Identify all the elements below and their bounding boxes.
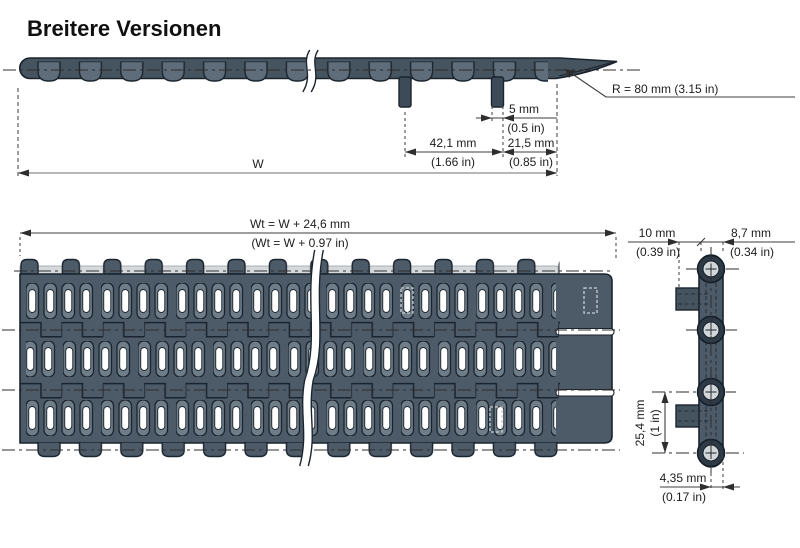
top-view: Wt = W + 24,6 mm (Wt = W + 0.97 in) (2, 217, 620, 466)
dim-radius-label: R = 80 mm (3.15 in) (612, 82, 718, 96)
edge-tab-lower (676, 405, 700, 427)
dim-total-width-in: (Wt = W + 0.97 in) (251, 236, 348, 250)
end-view: 10 mm (0.39 in) 8,7 mm (0.34 in) 25,4 mm… (628, 226, 795, 504)
dim-total-width-mm: Wt = W + 24,6 mm (250, 217, 350, 231)
edge-tab-upper (676, 288, 700, 310)
dim-pitch-in: (1 in) (648, 409, 662, 436)
dim-tab-length-in: (0.39 in) (636, 245, 680, 259)
dim-edge-offset-mm: 21,5 mm (508, 136, 555, 150)
dim-pin-offset-in: (0.17 in) (662, 490, 706, 504)
side-view: 5 mm (0.5 in) 42,1 mm (1.66 in) 21,5 mm … (3, 50, 795, 177)
hinge-joint-2 (20, 382, 560, 400)
slot-row-2 (26, 341, 556, 377)
dim-pin-offset-mm: 4,35 mm (660, 471, 707, 485)
dim-tab-width-in: (0.5 in) (507, 121, 544, 135)
dim-edge-width-mm: 8,7 mm (731, 226, 771, 240)
slot-row-1 (26, 283, 556, 319)
dim-pitch-mm: 25,4 mm (633, 400, 647, 447)
dim-tab-spacing-mm: 42,1 mm (430, 136, 477, 150)
dim-edge-offset-in: (0.85 in) (509, 155, 553, 169)
dim-edge-width-in: (0.34 in) (730, 245, 774, 259)
belt-tab-right (492, 77, 504, 107)
dim-tab-width-mm: 5 mm (509, 102, 539, 116)
row-gap-right-1 (556, 329, 614, 336)
top-hinge-tabs (20, 259, 560, 275)
technical-drawing: 5 mm (0.5 in) 42,1 mm (1.66 in) 21,5 mm … (0, 0, 800, 548)
slot-row-3 (26, 400, 556, 436)
belt-knuckles (34, 62, 548, 84)
dim-width-label: W (252, 157, 264, 171)
drawing-page: Breitere Versionen (0, 0, 800, 548)
belt-tab-left (399, 77, 411, 107)
dim-tab-spacing-in: (1.66 in) (431, 155, 475, 169)
dim-tab-length-mm: 10 mm (639, 226, 676, 240)
